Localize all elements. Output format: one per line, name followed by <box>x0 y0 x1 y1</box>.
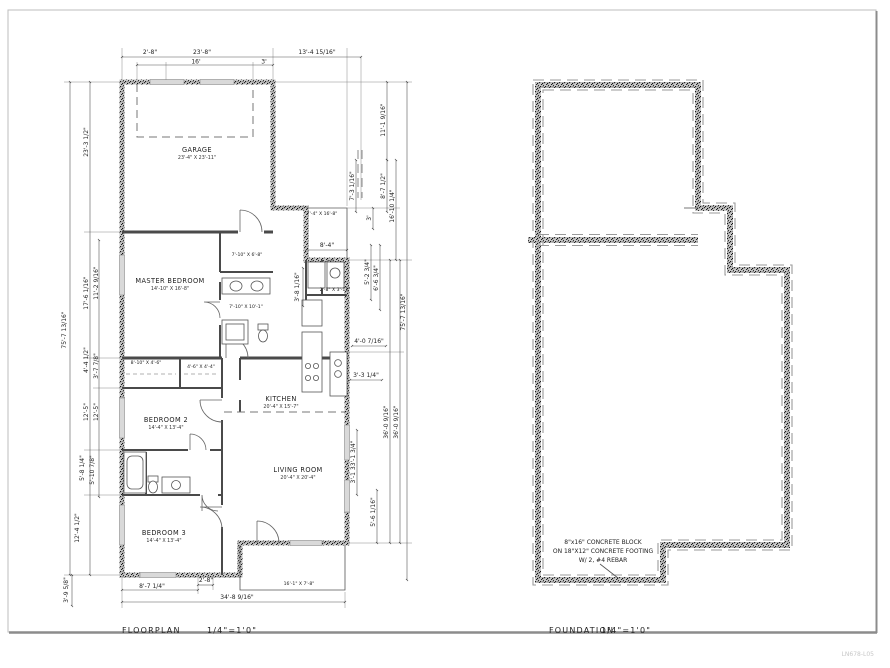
dim-label: 3'-7 7/8" <box>93 353 100 379</box>
room-label-bedroom3: BEDROOM 3 <box>142 529 186 537</box>
dim-label: 11'-2 9/16" <box>93 266 100 300</box>
room-size-master: 14'-10" X 16'-8" <box>151 286 189 292</box>
area-label-master-bath: 7'-10" X 10'-1" <box>229 304 263 310</box>
area-label-closet-small: 4'-6" X 4'-4" <box>187 364 215 370</box>
dim-label: 75'-7 13/16" <box>400 293 407 330</box>
dim-label: 23'-8" <box>193 49 211 56</box>
fixtures <box>124 150 362 493</box>
footing-inner-dashed <box>543 90 782 575</box>
sheet-watermark: LN678-L05 <box>842 651 875 658</box>
room-label-living: LIVING ROOM <box>273 466 322 474</box>
foundation-note-line2: ON 18"X12" CONCRETE FOOTING <box>553 548 654 555</box>
dim-label: 8'-4" <box>320 242 334 249</box>
dim-label: 7'-3 1/16" <box>349 171 356 201</box>
area-label-closet-hall: 8'-10" X 4'-6" <box>131 360 162 366</box>
room-label-master: MASTER BEDROOM <box>135 277 204 285</box>
room-size-garage: 23'-4" X 23'-11" <box>178 155 216 161</box>
room-label-kitchen: KITCHEN <box>265 395 296 403</box>
dim-label: 3' <box>261 59 267 66</box>
blueprint-canvas: 2'-8" 23'-8" 13'-4 15/16" 16' 3' 75'-7 1… <box>0 0 890 668</box>
dim-label: 3'-8 1/16" <box>294 272 301 302</box>
room-size-kitchen: 20'-4" X 15'-7" <box>263 404 298 410</box>
dim-label: 5'-8 1/4" <box>79 455 86 481</box>
dim-label: 4'-4 1/2" <box>83 347 90 373</box>
dim-label: 36'-0 9/16" <box>393 405 400 439</box>
room-label-bedroom2: BEDROOM 2 <box>144 416 188 424</box>
dim-label: 3'-1 33'-1 3/4" <box>350 440 357 483</box>
foundation-walls <box>538 85 787 580</box>
dim-label: 34'-8 9/16" <box>220 594 254 601</box>
foundation-drawing: 8"x16" CONCRETE BLOCK ON 18"X12" CONCRET… <box>528 80 792 585</box>
note-leader-line <box>600 564 618 578</box>
foundation-scale: 1/4"=1'0" <box>601 626 651 635</box>
dim-label: 23'-3 1/2" <box>83 127 90 157</box>
dim-label: 12'-5" <box>83 403 90 421</box>
dim-label: 4'-0 7/16" <box>354 338 384 345</box>
dim-label: 75'-7 13/16" <box>61 311 68 348</box>
dim-label: 36'-0 9/16" <box>383 405 390 439</box>
drawing-titles: FLOORPLAN 1/4"=1'0" FOUNDATION 1/4"=1'0"… <box>122 626 874 658</box>
dim-label: 5'-6 1/16" <box>370 497 377 527</box>
room-label-garage: GARAGE <box>182 146 212 154</box>
area-label-closet-master: 7'-10" X 6'-8" <box>232 252 263 258</box>
floorplan-scale: 1/4"=1'0" <box>207 626 257 635</box>
area-label-entry-porch: 7'-4" X 16'-8" <box>307 211 338 217</box>
dim-label: 12'-5" <box>93 403 100 421</box>
room-size-bedroom2: 14'-4" X 13'-4" <box>148 425 183 431</box>
footing-outer-dashed <box>533 80 792 585</box>
dim-label: 3'-9 5/8" <box>63 577 70 603</box>
room-size-bedroom3: 14'-4" X 13'-4" <box>146 538 181 544</box>
dim-label: 16' <box>191 59 201 66</box>
room-size-living: 20'-4" X 20'-4" <box>280 475 315 481</box>
dim-label: 12'-4 1/2" <box>74 513 81 543</box>
dim-label: 11'-1 9/16" <box>380 103 387 137</box>
foundation-note-line1: 8"x16" CONCRETE BLOCK <box>564 539 643 546</box>
area-label-rear-porch: 16'-1" X 7'-8" <box>284 581 315 587</box>
area-label-laundry: 2'-8" X 3'-11" <box>320 287 351 293</box>
dim-label: 8'-7 1/2" <box>380 173 387 199</box>
dim-label: 3' <box>366 215 373 221</box>
dim-label: 16'-10 1/4" <box>389 189 396 223</box>
floorplan-title: FLOORPLAN <box>122 626 181 635</box>
dim-label: 3'-3 1/4" <box>353 372 379 379</box>
dim-label: 2'-8" <box>143 49 157 56</box>
dim-label: 6'-6 3/4" <box>373 265 380 291</box>
drawing-sheet: 2'-8" 23'-8" 13'-4 15/16" 16' 3' 75'-7 1… <box>0 0 890 668</box>
dim-label: 5'-10 7/8" <box>89 455 96 485</box>
dim-label: 2'-8" <box>199 577 213 584</box>
dim-label: 5'-2 3/4" <box>364 259 371 285</box>
foundation-note-line3: W/ 2, #4 REBAR <box>579 557 628 564</box>
floorplan-drawing: 2'-8" 23'-8" 13'-4 15/16" 16' 3' 75'-7 1… <box>61 48 412 608</box>
garage-door-dashed <box>137 84 253 137</box>
dim-label: 17'-6 1/16" <box>83 276 90 310</box>
dim-label: 13'-4 15/16" <box>298 49 335 56</box>
dim-label: 8'-7 1/4" <box>139 583 165 590</box>
